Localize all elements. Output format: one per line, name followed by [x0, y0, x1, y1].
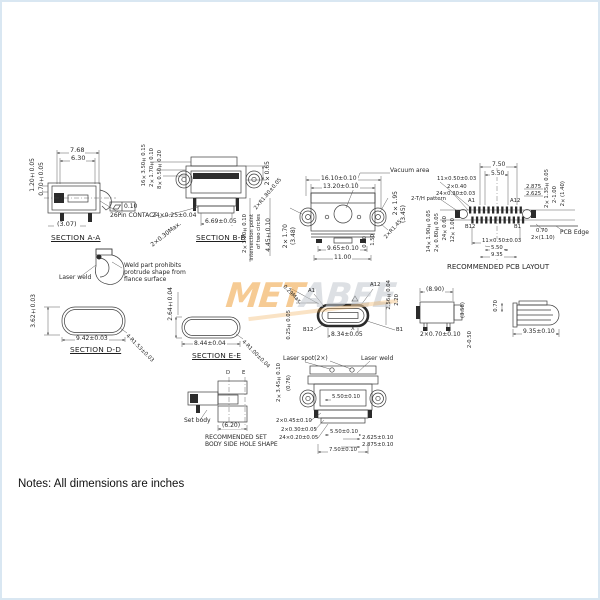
set-marker-d-top: D: [226, 371, 230, 377]
top-dim-348: (3.48): [291, 227, 297, 245]
side-view-890: [416, 288, 462, 331]
top-dim-965: 9.65±0.10: [326, 246, 360, 252]
dd-dim-362: 3.62±0.03: [31, 294, 37, 328]
top-dim-1100: 11.00: [333, 255, 352, 261]
pcb-pad-b1: B1: [514, 225, 521, 231]
laser-spot-label: Laser spot(2×): [283, 356, 328, 362]
weld-note-line3: flance surface: [124, 277, 166, 283]
top-dim-345: (3.45): [401, 205, 407, 223]
top-dim-2x170: 2×1.70: [283, 224, 289, 248]
drawing-notes: Notes: All dimensions are inches: [18, 478, 184, 490]
face-pin-b12: B12: [303, 328, 313, 334]
sv1-dim-2-050: 2-0.50: [468, 331, 474, 348]
set-title-line2: BODY SIDE HOLE SHAPE: [205, 442, 278, 448]
face-pin-a12: A12: [370, 283, 380, 289]
face-dim-220: 2.20: [395, 294, 401, 306]
top-dim-1610: 16.10±0.10: [320, 176, 358, 182]
bb-dim-669: 6.69±0.05: [204, 219, 238, 225]
sv1-dim-2x070: 2×0.70±0.10: [420, 332, 461, 338]
face-pin-b1: B1: [396, 328, 403, 334]
set-marker-e-top: E: [242, 371, 245, 377]
sv2-dim-935: 9.35±0.10: [522, 329, 556, 335]
bb-dim-2x170: 2×1.70±0.10: [150, 148, 156, 187]
pcb-dim-2x080: 2×0.80±0.05: [435, 213, 441, 252]
pcb-dim-24x060: 24×0.60: [443, 216, 449, 241]
pcb-dim-2x135: 2×1.35±0.05: [545, 169, 551, 208]
pcb-dim-935: 9.35: [490, 253, 504, 259]
connector-drawing-sheet: METABEE 7.68 6.30 1.20±0.05 0.70±0.05 (3…: [0, 0, 600, 600]
bb-note-circles: of two circles: [257, 214, 263, 249]
section-ee-title: SECTION E-E: [192, 352, 241, 360]
face-dim-256: 2.56±0.04: [387, 280, 393, 310]
section-bb-title: SECTION B-B: [196, 234, 246, 242]
bb-dim-445: 4.45±0.10: [266, 218, 272, 252]
sv1-dim-358: (3.58): [461, 302, 467, 318]
pcb-dim-550-bottom: 5.50: [490, 246, 504, 252]
pcb-dim-2x140: 2×(1.40): [561, 181, 567, 206]
bot-dim-550-mid: 5.50±0.10: [331, 395, 361, 401]
section-dd-title: SECTION D-D: [70, 346, 121, 354]
section-aa-title: SECTION A-A: [51, 234, 101, 242]
pcb-dim-2625: 2.625: [526, 192, 541, 198]
sv1-dim-890: (8.90): [425, 287, 445, 293]
pcb-dim-550-top: 5.50: [490, 171, 505, 177]
pcb-edge-label: PCB Edge: [560, 230, 589, 236]
aa-flatness-value: 0.10: [124, 204, 137, 210]
bot-dim-076: (0.76): [287, 375, 293, 391]
face-dim-834: 8.34±0.05: [330, 332, 364, 338]
top-dim-2x195: 2×1.95: [393, 191, 399, 215]
set-dim-620: (6.20): [221, 423, 241, 429]
bot-dim-2875: 2.875±0.10: [362, 443, 393, 449]
pcb-dim-11x050-bottom: 11×0.50±0.03: [481, 239, 522, 245]
aa-dim-768: 7.68: [69, 147, 85, 154]
sv2-dim-070: 0.70: [494, 300, 500, 312]
bb-dim-16x350: 16×3.50±0.15: [142, 144, 148, 186]
face-dim-025: 0.25±0.05: [287, 310, 293, 340]
pcb-dim-2x040: 2×0.40: [447, 185, 467, 191]
pcb-dim-070: 0.70: [536, 229, 548, 235]
bot-dim-24x020: 24×0.20±0.05: [279, 436, 318, 442]
pcb-dim-2-100: 2-1.00: [553, 186, 559, 203]
dd-dim-942: 9.42±0.03: [75, 336, 109, 342]
bot-dim-2625: 2.625±0.10: [362, 436, 393, 442]
top-dim-040: 0.40: [363, 236, 369, 248]
pcb-pad-b12: B12: [465, 225, 475, 231]
bb-note-intersection: intersection point: [250, 214, 256, 261]
pcb-dim-12x100: 12×1.00: [451, 218, 457, 243]
face-pin-a1: A1: [308, 289, 315, 295]
pcb-pad-a12: A12: [510, 199, 520, 205]
pcb-dim-14x190: 14×1.90±0.05: [427, 210, 433, 252]
pcb-dim-750: 7.50: [491, 162, 506, 168]
top-dim-150: 1.50: [371, 234, 377, 246]
aa-dim-307: (3.07): [56, 221, 78, 228]
vacuum-area-label: Vacuum area: [390, 168, 429, 174]
pcb-dim-2875: 2.875: [526, 185, 541, 191]
bb-dim-8x050: 8×0.50±0.20: [158, 150, 164, 189]
set-body-label: Set body: [184, 418, 211, 424]
ee-dim-264: 2.64±0.04: [168, 287, 174, 321]
ee-dim-844: 8.44±0.04: [193, 341, 227, 347]
aa-dim-070: 0.70±0.05: [39, 162, 45, 196]
pcb-dim-11x050-top: 11×0.50±0.03: [437, 177, 476, 183]
bottom-laser-weld-label: Laser weld: [361, 356, 393, 362]
bb-dim-2x065: 2×0.65: [265, 161, 271, 185]
laser-weld-label: Laser weld: [59, 275, 91, 281]
pcb-dim-2x110: 2×(1.10): [531, 236, 555, 242]
pcb-layout-title: RECOMMENDED PCB LAYOUT: [447, 264, 549, 271]
bot-dim-2x045: 2×0.45±0.10: [276, 419, 312, 425]
aa-dim-630: 6.30: [70, 155, 86, 162]
bot-dim-750: 7.50±0.10: [328, 448, 358, 454]
pcb-pad-a1: A1: [468, 199, 475, 205]
bot-dim-550-low: 5.50±0.10: [329, 430, 359, 436]
aa-dim-120: 1.20±0.05: [30, 158, 36, 192]
top-dim-1320: 13.20±0.10: [322, 184, 360, 190]
pcb-th-pattern-label: 2-T/H pattern: [411, 197, 446, 203]
bot-dim-2x345: 2×3.45±0.10: [277, 363, 283, 402]
aa-contact-label: 26Pin CONTACT: [110, 213, 157, 219]
bot-dim-2x030: 2×0.30±0.05: [281, 428, 317, 434]
bb-dim-pins: 24×0.25±0.04: [152, 213, 196, 219]
